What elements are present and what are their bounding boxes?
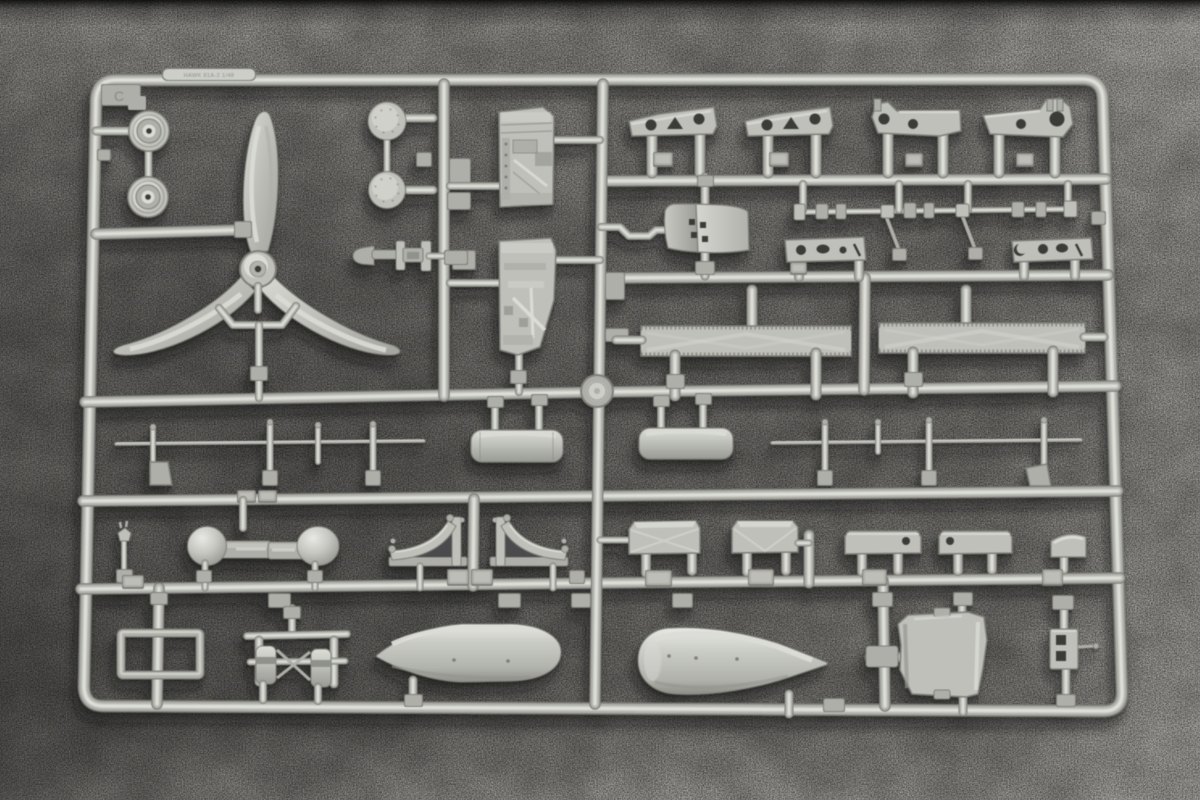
svg-text:HAWK 81A-2 1/48: HAWK 81A-2 1/48 <box>184 73 235 79</box>
svg-text:C: C <box>114 88 124 104</box>
